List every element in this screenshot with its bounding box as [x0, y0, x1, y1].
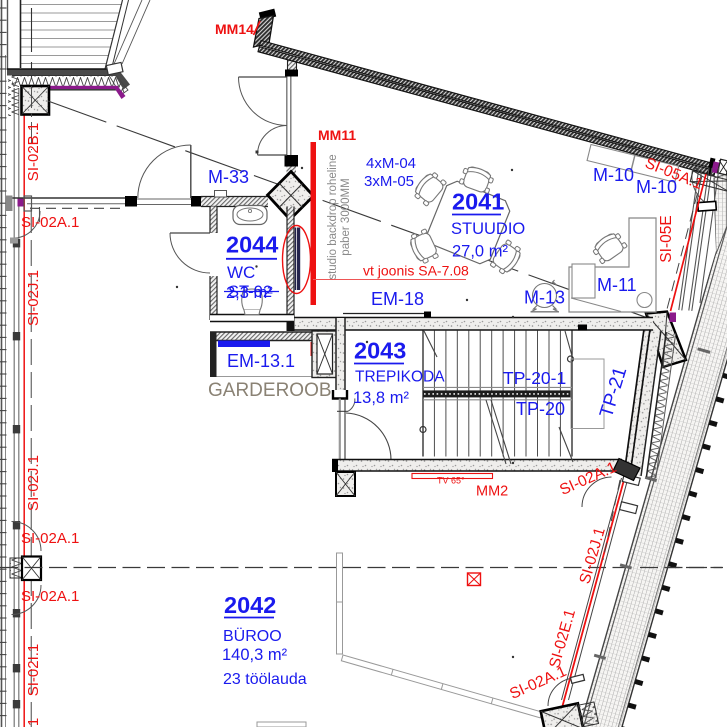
- svg-text:SI-02B.1: SI-02B.1: [25, 123, 42, 181]
- svg-text:WC: WC: [227, 263, 255, 282]
- svg-text:13,8 m²: 13,8 m²: [353, 389, 409, 407]
- svg-text:2044: 2044: [226, 232, 278, 258]
- svg-text:M-11: M-11: [597, 275, 637, 295]
- svg-text:TREPIKODA: TREPIKODA: [355, 369, 445, 386]
- svg-text:EM-18: EM-18: [371, 289, 424, 309]
- svg-text:TP-20: TP-20: [516, 399, 565, 419]
- svg-text:2042: 2042: [224, 592, 276, 618]
- svg-text:1: 1: [25, 718, 42, 726]
- svg-text:2041: 2041: [452, 189, 504, 215]
- svg-text:2043: 2043: [354, 338, 406, 364]
- svg-text:M-10: M-10: [593, 165, 634, 185]
- svg-text:MM2: MM2: [476, 484, 508, 500]
- svg-text:vt joonis SA-7.08: vt joonis SA-7.08: [363, 263, 469, 279]
- svg-text:TP-20-1: TP-20-1: [503, 368, 566, 388]
- svg-text:GARDEROOB: GARDEROOB: [208, 380, 332, 401]
- svg-text:studio backdrop roheline: studio backdrop roheline: [327, 154, 339, 279]
- svg-text:SI-02A.1: SI-02A.1: [21, 214, 79, 231]
- svg-text:140,3 m²: 140,3 m²: [222, 646, 288, 664]
- svg-text:SI-05E: SI-05E: [658, 215, 675, 262]
- svg-text:4xM-04: 4xM-04: [366, 155, 416, 172]
- svg-text:SI-02J.1: SI-02J.1: [25, 270, 42, 326]
- svg-text:MM14: MM14: [215, 21, 254, 37]
- svg-text:M-13: M-13: [524, 288, 565, 308]
- svg-text:TV 65°: TV 65°: [437, 476, 465, 486]
- svg-text:23 töölauda: 23 töölauda: [223, 671, 307, 688]
- svg-text:M-33: M-33: [208, 167, 249, 187]
- svg-text:MM11: MM11: [318, 127, 356, 143]
- svg-text:STUUDIO: STUUDIO: [451, 220, 525, 238]
- svg-text:SI-02I.1: SI-02I.1: [25, 644, 42, 697]
- svg-text:SI-02A.1: SI-02A.1: [21, 588, 79, 605]
- svg-text:EM-13.1: EM-13.1: [227, 351, 295, 371]
- svg-text:27,0 m²: 27,0 m²: [452, 243, 508, 261]
- svg-text:SI-02J.1: SI-02J.1: [25, 455, 42, 511]
- svg-text:BÜROO: BÜROO: [223, 627, 282, 645]
- svg-text:3xM-05: 3xM-05: [364, 173, 414, 190]
- svg-text:paber 3000MM: paber 3000MM: [340, 178, 352, 255]
- svg-text:SI-02A.1: SI-02A.1: [21, 530, 79, 547]
